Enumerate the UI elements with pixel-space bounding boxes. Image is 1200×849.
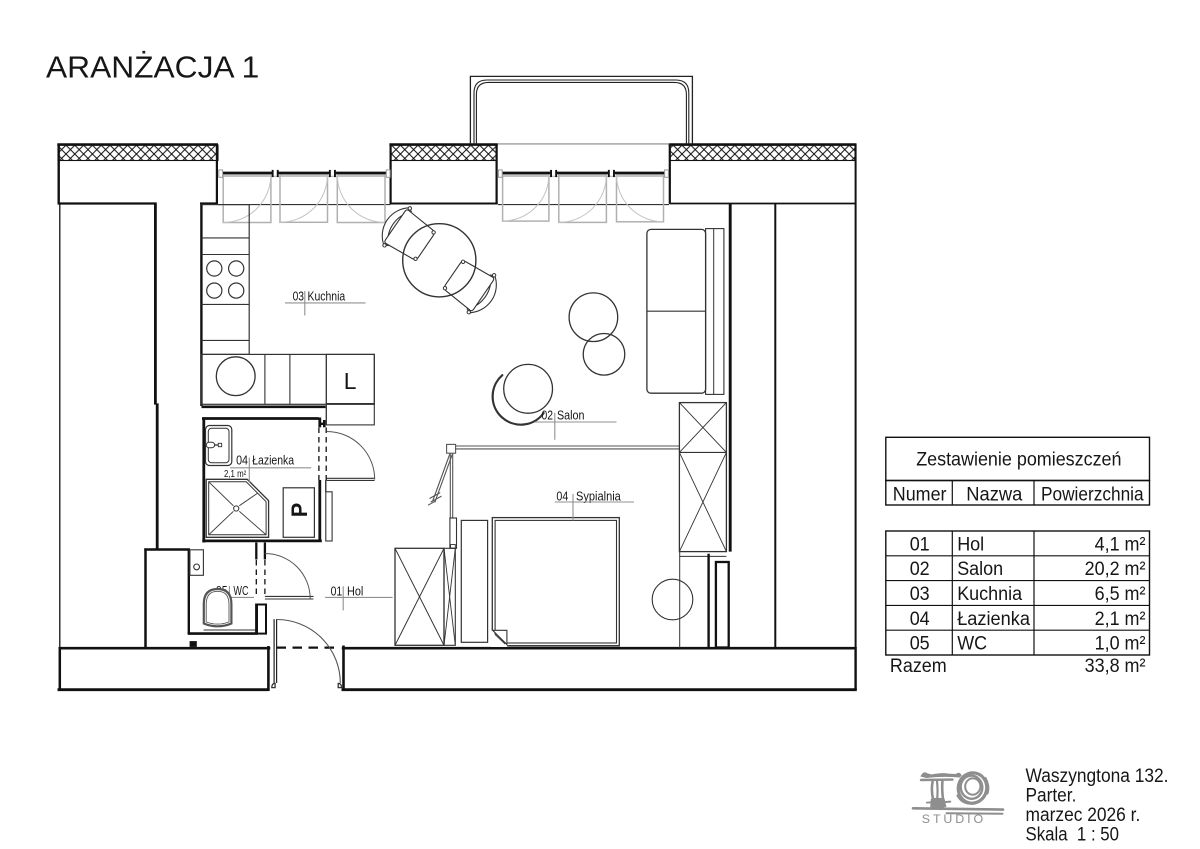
svg-text:Sypialnia: Sypialnia <box>576 489 622 504</box>
svg-text:01: 01 <box>331 583 343 598</box>
svg-text:Salon: Salon <box>957 559 1003 580</box>
svg-text:WC: WC <box>233 583 248 598</box>
svg-text:33,8 m²: 33,8 m² <box>1085 656 1146 677</box>
svg-text:P: P <box>287 503 312 518</box>
svg-text:ARANŻACJA 1: ARANŻACJA 1 <box>46 49 259 84</box>
svg-text:04: 04 <box>910 609 930 630</box>
svg-text:STUDIO: STUDIO <box>922 812 986 826</box>
svg-text:2,1 m²: 2,1 m² <box>224 469 247 480</box>
svg-text:Kuchnia: Kuchnia <box>957 584 1022 605</box>
svg-text:Łazienka: Łazienka <box>957 609 1030 630</box>
svg-text:WC: WC <box>957 634 987 655</box>
svg-text:Hol: Hol <box>347 583 363 598</box>
svg-text:04: 04 <box>236 453 248 468</box>
svg-text:03: 03 <box>910 584 930 605</box>
svg-text:6,5 m²: 6,5 m² <box>1095 584 1146 605</box>
svg-text:05: 05 <box>910 634 930 655</box>
svg-text:04: 04 <box>556 489 568 504</box>
svg-text:2,1 m²: 2,1 m² <box>1095 609 1146 630</box>
svg-text:Nazwa: Nazwa <box>966 484 1022 505</box>
svg-text:02: 02 <box>542 408 554 423</box>
svg-text:02: 02 <box>910 559 930 580</box>
svg-text:Hol: Hol <box>957 534 984 555</box>
svg-text:03: 03 <box>293 289 304 304</box>
svg-text:4,1 m²: 4,1 m² <box>1095 534 1146 555</box>
svg-text:1,0 m²: 1,0 m² <box>1095 634 1146 655</box>
svg-text:Numer: Numer <box>893 484 947 505</box>
svg-text:20,2 m²: 20,2 m² <box>1085 559 1146 580</box>
svg-text:Zestawienie pomieszczeń: Zestawienie pomieszczeń <box>916 449 1121 470</box>
svg-text:Kuchnia: Kuchnia <box>308 289 346 304</box>
svg-text:Salon: Salon <box>557 408 585 423</box>
svg-text:L: L <box>344 368 357 394</box>
svg-text:01: 01 <box>910 534 930 555</box>
svg-text:Powierzchnia: Powierzchnia <box>1041 484 1144 505</box>
svg-text:Razem: Razem <box>890 656 947 677</box>
svg-text:Skala 1 : 50: Skala 1 : 50 <box>1026 824 1120 846</box>
svg-text:Łazienka: Łazienka <box>252 453 295 468</box>
